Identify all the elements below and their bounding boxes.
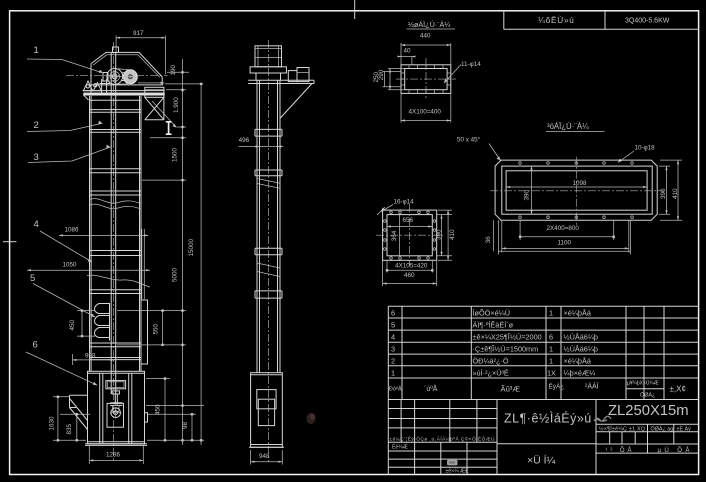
svg-text:390: 390	[523, 189, 530, 200]
svg-text:½øÁÏ¿Ú·¨À¼: ½øÁÏ¿Ú·¨À¼	[408, 20, 451, 29]
svg-text:835: 835	[66, 423, 73, 434]
svg-text:36: 36	[485, 236, 492, 244]
svg-text:Ãû³Æ: Ãû³Æ	[501, 385, 521, 394]
svg-text:6: 6	[549, 333, 553, 342]
svg-text:¹² ÕÅ: ¹² ÕÅ	[606, 447, 633, 454]
svg-text:1100: 1100	[558, 240, 572, 247]
svg-text:948: 948	[259, 453, 270, 460]
svg-text:Éè¼Æ: Éè¼Æ	[392, 444, 408, 451]
svg-text:½×¶Î±ê¼Ç ±1 XQ: ½×¶Î±ê¼Ç ±1 XQ	[599, 425, 645, 432]
svg-text:±ê×¼ ÆÉ: ±ê×¼ ÆÉ	[446, 468, 470, 475]
svg-text:1500: 1500	[172, 147, 179, 162]
svg-text:656: 656	[403, 217, 414, 224]
svg-text:917: 917	[133, 30, 144, 37]
svg-text:´úºÅ: ´úºÅ	[424, 384, 438, 393]
svg-text:16-φ14: 16-φ14	[394, 199, 415, 206]
svg-text:±,X¢: ±,X¢	[670, 385, 686, 394]
svg-text:½ÚÅä6¼þ: ½ÚÅä6¼þ	[564, 333, 598, 342]
svg-text:ÊýÁ¿: ÊýÁ¿	[549, 382, 565, 391]
svg-text:ZL¶·ê½ÌáÉý»ú: ZL¶·ê½ÌáÉý»ú	[504, 411, 592, 426]
svg-text:3: 3	[391, 345, 395, 354]
svg-text:2X400=800: 2X400=800	[547, 225, 580, 232]
svg-text:3: 3	[34, 152, 39, 163]
svg-text:±È Àý: ±È Àý	[677, 425, 692, 432]
svg-text:5: 5	[30, 273, 35, 284]
svg-text:ÐòºÅ: ÐòºÅ	[389, 386, 402, 393]
svg-text:2: 2	[391, 357, 395, 366]
svg-text:440: 440	[420, 33, 431, 40]
svg-text:988: 988	[85, 353, 96, 360]
svg-text:1098: 1098	[573, 180, 588, 187]
svg-text:ÁÏ¶·ºÍÊäËÍ´ø: ÁÏ¶·ºÍÊäËÍ´ø	[473, 321, 514, 330]
svg-text:364: 364	[391, 230, 398, 241]
svg-text:×é¼þÅä: ×é¼þÅä	[564, 309, 592, 318]
svg-text:1: 1	[549, 345, 553, 354]
svg-text:ÖÐ¼ä²¿·Ö: ÖÐ¼ä²¿·Ö	[473, 357, 509, 366]
svg-text:¼õËÙ»ú: ¼õËÙ»ú	[538, 15, 575, 25]
svg-text:550: 550	[152, 323, 159, 334]
svg-text:5000: 5000	[172, 267, 179, 282]
svg-text:²ÄÁÏ: ²ÄÁÏ	[585, 382, 599, 391]
svg-text:¼þ×éÆ¼: ¼þ×éÆ¼	[564, 369, 597, 378]
svg-text:×é¼þÅä: ×é¼þÅä	[564, 357, 592, 366]
svg-text:6: 6	[33, 340, 38, 351]
svg-text:1286: 1286	[106, 452, 121, 459]
svg-text:450: 450	[69, 319, 76, 330]
svg-text:1X: 1X	[547, 369, 556, 378]
svg-text:4X105=420: 4X105=420	[395, 263, 428, 270]
svg-text:4: 4	[391, 333, 395, 342]
svg-text:1: 1	[549, 309, 553, 318]
svg-text:98: 98	[182, 421, 189, 429]
svg-text:1: 1	[34, 45, 39, 56]
svg-text:390: 390	[436, 229, 443, 240]
svg-text:6: 6	[391, 309, 395, 318]
svg-text:»úÍ·²¿×Ü³É: »úÍ·²¿×Ü³É	[473, 369, 509, 378]
svg-text:1.900: 1.900	[173, 97, 180, 113]
svg-text:2: 2	[34, 120, 39, 131]
svg-text:15000: 15000	[188, 238, 195, 256]
svg-text:450: 450	[155, 404, 162, 415]
svg-text:390: 390	[660, 188, 667, 199]
svg-text:1: 1	[391, 369, 395, 378]
svg-text:250: 250	[373, 71, 380, 82]
svg-text:5: 5	[391, 321, 395, 330]
svg-text:496: 496	[239, 137, 250, 144]
svg-text:190: 190	[170, 64, 177, 75]
svg-text:ZL250X15m: ZL250X15m	[608, 403, 689, 419]
svg-text:40: 40	[404, 48, 412, 55]
svg-text:·Ç±ê¶Î½Ú=1500mm: ·Ç±ê¶Î½Ú=1500mm	[473, 345, 539, 354]
svg-text:1050: 1050	[63, 262, 78, 269]
svg-text:1630: 1630	[49, 416, 56, 431]
svg-text:4X100=400: 4X100=400	[409, 109, 442, 116]
svg-text:11-φ14: 11-φ14	[461, 61, 481, 68]
svg-text:µ¥¼þX×Ü¼Æ: µ¥¼þX×Ü¼Æ	[627, 380, 659, 387]
svg-text:±ê×¼X25¶Î½Ú=2000: ±ê×¼X25¶Î½Ú=2000	[473, 333, 542, 342]
svg-text:4: 4	[34, 219, 39, 230]
svg-text:½ÚÅä6¼þ: ½ÚÅä6¼þ	[564, 345, 598, 354]
svg-text:410: 410	[449, 229, 456, 240]
svg-text:460: 460	[404, 272, 415, 279]
svg-text:1086: 1086	[65, 227, 80, 234]
svg-text:50 x 45°: 50 x 45°	[457, 136, 481, 144]
svg-text:ÍøÕÖ×é¼Ü: ÍøÕÖ×é¼Ü	[473, 309, 511, 318]
svg-text:ÖØÁ¿: ÖØÁ¿	[640, 392, 655, 399]
svg-text:1: 1	[549, 357, 553, 366]
svg-text:³öÁÏ¿Ú·¨À¼: ³öÁÏ¿Ú·¨À¼	[547, 122, 589, 131]
svg-text:×Ü Í¼: ×Ü Í¼	[527, 454, 556, 467]
svg-text:ÖØÁ¿ ag: ÖØÁ¿ ag	[651, 425, 674, 432]
svg-text:410: 410	[672, 188, 679, 199]
svg-text:10-φ18: 10-φ18	[635, 145, 656, 152]
svg-text:3Q400-5.6KW: 3Q400-5.6KW	[625, 18, 670, 25]
